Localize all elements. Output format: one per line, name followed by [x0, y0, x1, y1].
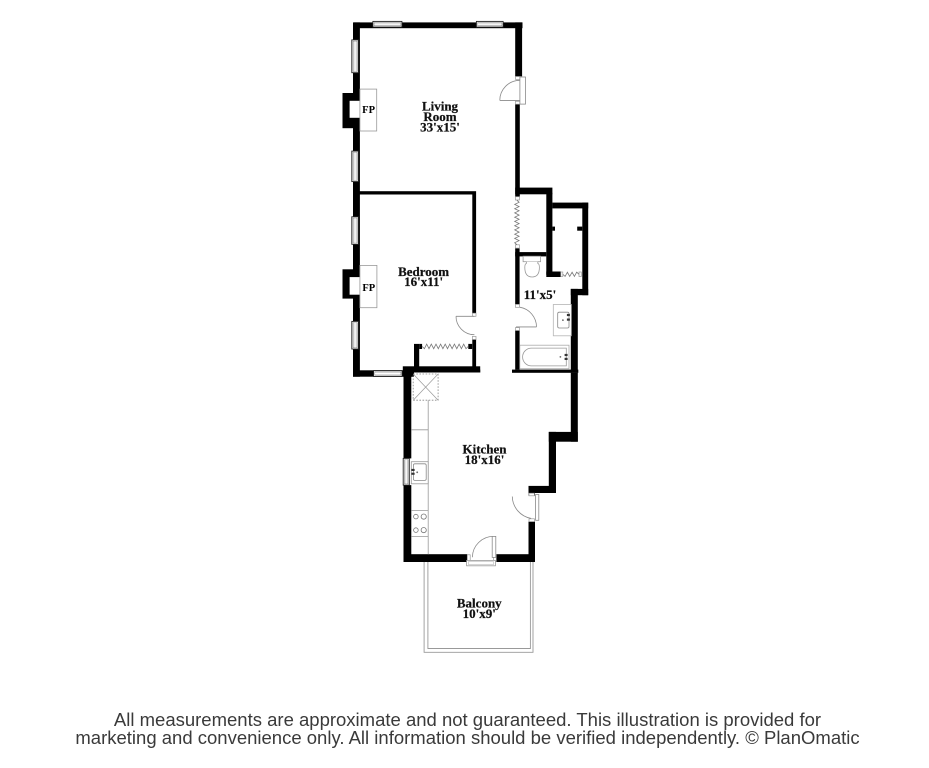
svg-text:10'x9': 10'x9': [463, 606, 496, 621]
svg-text:11'x5': 11'x5': [524, 287, 557, 302]
svg-text:18'x16': 18'x16': [465, 452, 505, 467]
svg-text:16'x11': 16'x11': [404, 274, 443, 289]
svg-text:marketing and convenience only: marketing and convenience only. All info…: [75, 727, 859, 748]
svg-text:FP: FP: [362, 283, 375, 294]
svg-text:FP: FP: [362, 105, 375, 116]
svg-text:33'x15': 33'x15': [420, 119, 460, 134]
